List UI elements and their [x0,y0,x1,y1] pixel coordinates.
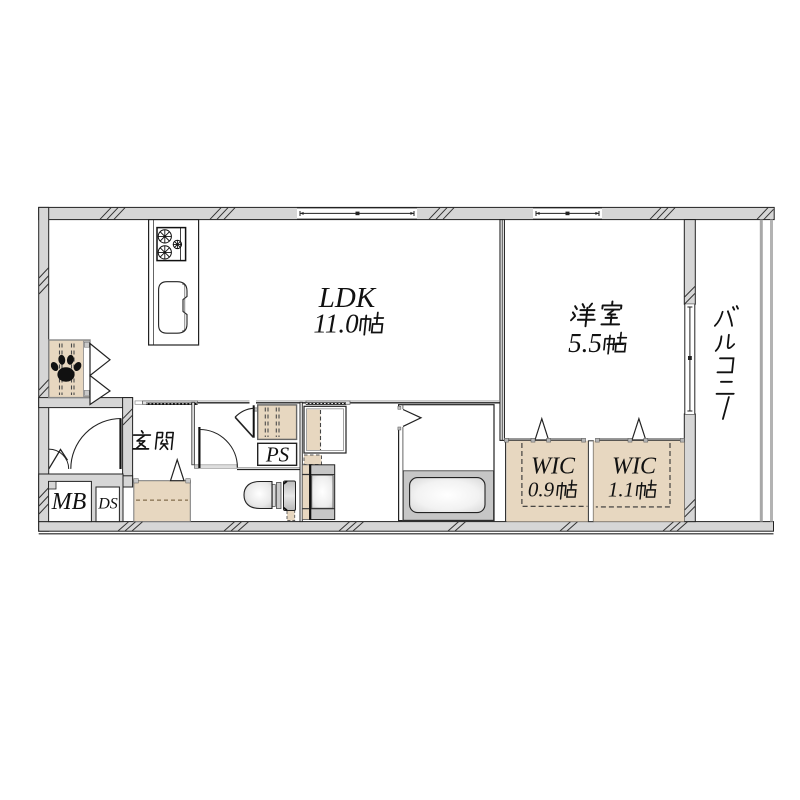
svg-text:0.9: 0.9 [528,478,555,502]
svg-text:MB: MB [51,489,87,515]
svg-text:DS: DS [97,496,118,513]
svg-text:WIC: WIC [531,454,576,480]
svg-text:PS: PS [265,443,290,467]
svg-text:5.5: 5.5 [568,328,602,358]
svg-text:1.1: 1.1 [608,478,634,502]
svg-text:WIC: WIC [612,454,657,480]
svg-text:11.0: 11.0 [313,309,359,339]
